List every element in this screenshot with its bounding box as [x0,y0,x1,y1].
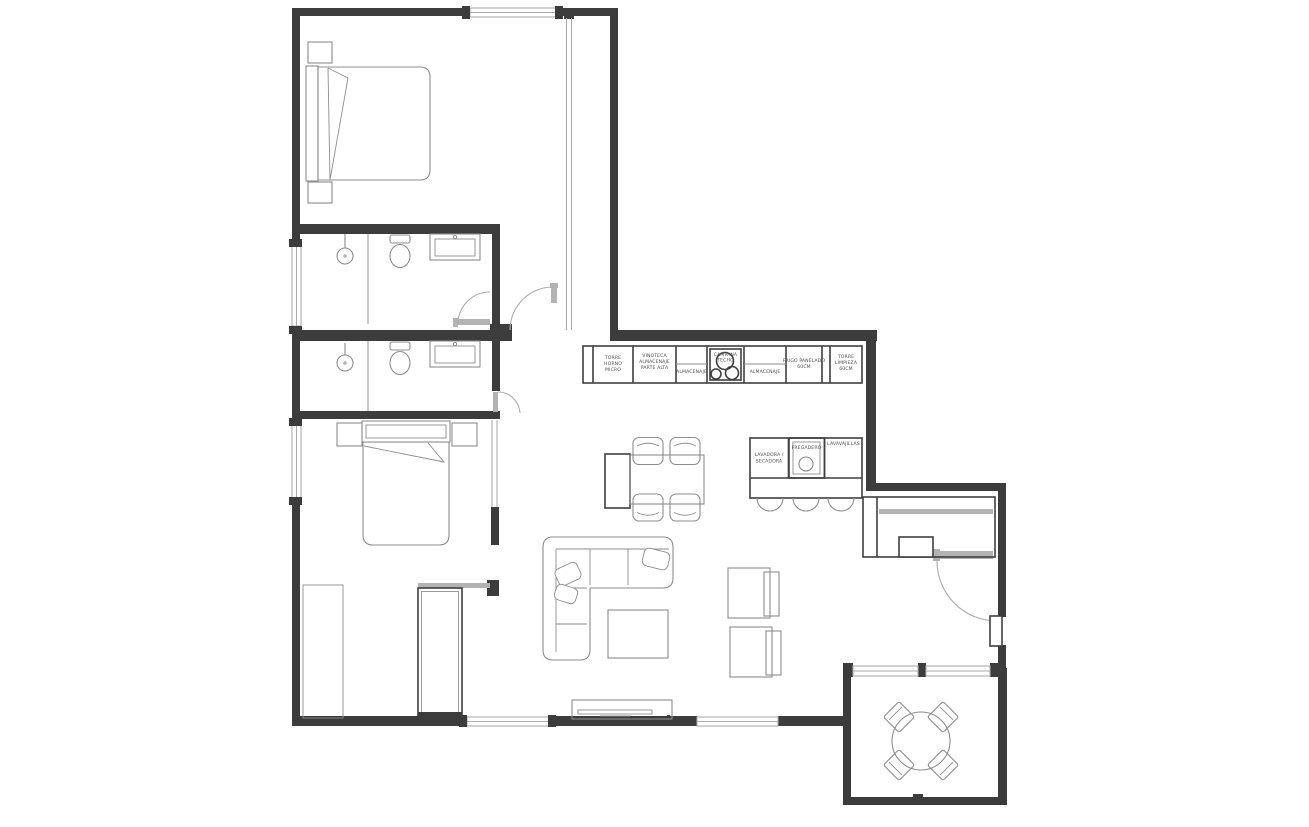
label-torre-horno: TORRE [604,355,621,361]
window-cap [289,239,302,247]
bed-headboard [306,66,318,181]
basin [435,239,475,256]
sideboard [605,454,630,508]
label-torre-limpieza: 60CM [839,366,853,372]
armchair [730,627,781,677]
door-swing-arc [937,561,997,621]
door-leaf-closed [990,616,1002,646]
glazed-partition-cap [564,14,574,19]
bed-headboard [362,421,450,442]
west-wall-middle [292,326,300,425]
entry-door [933,549,1002,646]
entry-north-wall [866,483,1006,491]
terrace-chair [927,701,958,732]
door-jamb [933,549,940,561]
interior-walls [300,14,574,596]
hall-bench [899,537,933,557]
bed-sheet-fold [328,68,348,180]
dining-area [605,438,704,522]
door-leaf [458,319,490,325]
armchair [728,568,779,618]
door-leaf [493,392,498,412]
bath2-bedroom2-wall [300,411,500,419]
living-south-window-2 [697,717,778,726]
bedroom-2 [337,421,477,545]
bar-stools [757,498,854,511]
nightstand [308,42,332,63]
armchair-back [764,572,779,616]
basin [435,346,475,363]
window-cap [462,6,470,19]
terrace-chair [883,701,914,732]
south-wall-center [549,716,697,726]
cabinet-run [583,346,862,383]
bath2-door [493,392,520,413]
toilet [390,342,410,375]
door-swing-arc [498,392,520,413]
corridor-door-pier [490,324,512,341]
bath1-west-window [289,239,302,334]
double-bed [363,442,449,545]
exterior-walls [292,8,1007,805]
window-cap [289,418,302,426]
bedroom2-east-wall [491,507,499,545]
label-vinoteca: ALMACENAJE [639,359,670,365]
socket-mark [667,715,670,718]
toilet-tank [390,235,410,243]
dressing-area [303,583,490,718]
sink-drain [799,457,813,471]
washbasin [430,341,480,367]
stool [828,498,854,511]
bedroom-1 [306,42,430,203]
terrace-window-end-cap [990,663,998,677]
label-almacenaje-2: ALMACENAJE [750,369,781,375]
bath1-east-wall [492,224,500,334]
stool [793,498,819,511]
bedroom-section-east-wall [610,8,618,338]
bathroom-1 [337,234,480,324]
bedroom1-bath1-wall [300,224,500,234]
west-wall-upper [292,8,300,246]
label-campana: CAMPANA [714,352,738,358]
label-lavadora: LAVADORA / [754,452,783,458]
label-frigo: 60CM [797,364,811,370]
top-wall-left [292,8,470,16]
terrace-table [892,712,950,770]
shower-head-center [343,361,347,365]
bath2-east-wall [492,341,500,391]
corridor-glazed-partition [567,18,572,330]
stool [757,498,783,511]
door-jamb [453,318,458,327]
label-campana: TECHO [716,358,734,364]
dining-chair [670,438,700,465]
burner-medium [726,367,739,380]
east-wall-upper [998,491,1006,617]
bathroom-2 [337,341,480,411]
window-cap [555,6,563,19]
west-wall-lower [292,498,300,726]
terrace-east-wall [998,668,1007,805]
terrace [883,701,958,799]
terrace-south-notch [913,794,923,799]
toilet [390,235,410,268]
window-cap [289,497,302,505]
east-wall-stub [998,645,1006,668]
wardrobe-base [418,712,462,717]
floor-plan-drawing: TORRE HORNO MICRO VINOTECA ALMACENAJE PA… [0,0,1309,827]
bedroom1-top-window [462,6,563,19]
armchair-back [766,631,781,675]
label-vinoteca: VINOTECA [642,353,667,359]
faucet [453,235,456,238]
toilet-bowl [390,245,410,268]
washbasin [430,234,480,260]
floor-plan-page: TORRE HORNO MICRO VINOTECA ALMACENAJE PA… [0,0,1309,827]
island-labels: LAVADORA / SECADORA FREGADERO LAVAVAJILL… [754,441,859,465]
kitchen-island: LAVADORA / SECADORA FREGADERO LAVAVAJILL… [750,438,862,511]
burner-small [711,369,721,379]
label-torre-horno: MICRO [605,367,621,373]
coffee-table [608,610,668,658]
label-lavadora: SECADORA [756,459,783,465]
label-lavavajillas: LAVAVAJILLAS [827,441,860,447]
wardrobe-run [303,585,343,718]
kitchen-east-wall [866,341,876,491]
terrace-south-wall [843,797,1007,805]
terrace-chair [927,749,958,780]
kitchen-cabinet-labels: TORRE HORNO MICRO VINOTECA ALMACENAJE PA… [604,352,858,375]
sink-module [789,438,825,478]
nightstand [308,182,332,203]
double-bed [318,67,430,180]
door-swing-arc [510,287,553,330]
window-cap [289,326,302,334]
terrace-north-corner [843,663,853,677]
faucet [453,342,456,345]
terrace-window-mullion [918,663,926,677]
entry-hall [863,497,995,557]
corridor-door [510,283,558,330]
bath1-door [453,292,490,327]
label-frigo: FRIGO PANELADO [783,358,826,364]
dining-table [630,455,704,504]
kitchen-north-wall [610,330,877,341]
dining-chair [633,438,663,465]
bedroom2-glazed-partition [492,420,497,507]
bath1-bath2-wall [300,330,500,341]
label-vinoteca: PARTE ALTA [641,365,669,371]
label-torre-limpieza: LIMPIEZA [835,360,858,366]
label-torre-horno: HORNO [604,361,622,367]
terrace-west-wall [843,677,851,805]
living-area [543,537,781,719]
terrace-chair [883,749,914,780]
door-leaf [551,287,557,303]
label-fregadero: FREGADERO [792,445,822,451]
toilet-bowl [390,352,410,375]
window-cap [548,715,556,727]
bed-sheet-fold [364,443,444,462]
living-south-window [459,715,556,727]
kitchen-wall-cabinets: TORRE HORNO MICRO VINOTECA ALMACENAJE PA… [583,346,862,383]
tv-screen [578,710,652,714]
wardrobe-inner [422,592,459,714]
dining-chair [670,494,700,521]
dining-chair [633,494,663,521]
bed-pillow-band [366,425,446,438]
nightstand [337,423,362,446]
hall-cabinet-shelf [879,509,993,514]
windows [289,6,990,727]
nightstand [452,423,477,446]
shower-head-center [343,254,347,258]
south-wall-right [778,716,851,726]
bedroom2-west-window [289,418,302,505]
label-almacenaje-1: ALMACENAJE [676,369,707,375]
label-torre-limpieza: TORRE [837,354,854,360]
toilet-tank [390,342,410,350]
tall-wardrobe-unit [418,588,462,717]
